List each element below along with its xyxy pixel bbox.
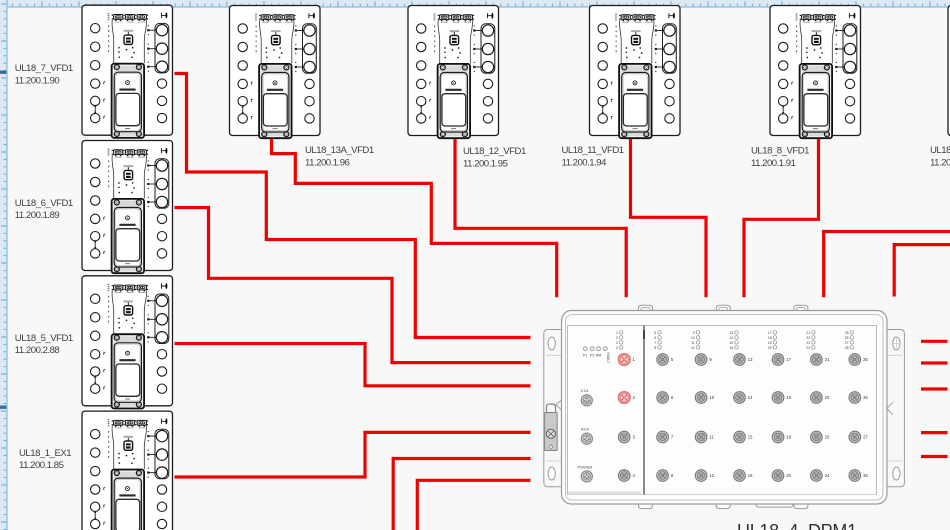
svg-text:UL18_1_EX1: UL18_1_EX1 <box>19 448 71 459</box>
svg-text:UL18_12_VFD1: UL18_12_VFD1 <box>463 146 526 157</box>
svg-text:UL18_11_VFD1: UL18_11_VFD1 <box>562 145 624 156</box>
svg-text:27: 27 <box>863 435 868 440</box>
svg-text:11.200.1.90: 11.200.1.90 <box>15 75 60 86</box>
svg-text:11.200.1.96: 11.200.1.96 <box>305 157 350 168</box>
svg-text:14: 14 <box>748 395 753 400</box>
svg-text:6: 6 <box>654 336 656 340</box>
svg-text:12: 12 <box>709 473 714 478</box>
svg-text:1: 1 <box>616 331 618 335</box>
svg-text:11: 11 <box>709 435 714 440</box>
svg-text:28: 28 <box>863 473 868 478</box>
svg-text:11: 11 <box>691 341 695 345</box>
svg-text:23: 23 <box>825 435 830 440</box>
svg-text:11.200.1.91: 11.200.1.91 <box>751 158 796 169</box>
svg-text:16: 16 <box>729 346 733 350</box>
svg-text:11.200.1.89: 11.200.1.89 <box>15 210 60 221</box>
svg-text:26: 26 <box>845 336 849 340</box>
svg-text:18: 18 <box>768 336 772 340</box>
svg-text:15: 15 <box>748 435 753 440</box>
svg-text:ACA: ACA <box>581 427 589 432</box>
svg-text:27: 27 <box>845 341 849 345</box>
svg-text:UL18_5_VFD1: UL18_5_VFD1 <box>15 333 73 344</box>
svg-text:25: 25 <box>845 331 849 335</box>
svg-text:21: 21 <box>825 357 830 362</box>
svg-text:11.200.1.97: 11.200.1.97 <box>930 157 950 168</box>
svg-text:10: 10 <box>691 336 695 340</box>
svg-text:4: 4 <box>616 346 618 350</box>
svg-text:24: 24 <box>806 346 810 350</box>
svg-text:11.200.1.95: 11.200.1.95 <box>463 158 508 169</box>
svg-text:28: 28 <box>845 346 849 350</box>
svg-text:UL18_4_DPM1: UL18_4_DPM1 <box>737 521 857 530</box>
svg-text:14: 14 <box>729 336 733 340</box>
svg-text:3: 3 <box>616 341 618 345</box>
svg-text:11.200.1.85: 11.200.1.85 <box>19 460 64 471</box>
svg-text:8: 8 <box>654 346 656 350</box>
svg-text:11.200.1.94: 11.200.1.94 <box>562 157 608 168</box>
svg-text:UL18_6_VFD1: UL18_6_VFD1 <box>15 198 73 209</box>
svg-text:POWER: POWER <box>578 464 593 469</box>
svg-text:17: 17 <box>786 357 791 362</box>
svg-text:20: 20 <box>786 473 791 478</box>
svg-text:P2: P2 <box>590 353 594 357</box>
svg-text:23: 23 <box>806 341 810 345</box>
svg-text:UL18_8_VFD1: UL18_8_VFD1 <box>751 146 809 157</box>
svg-text:2: 2 <box>616 336 618 340</box>
svg-text:RM: RM <box>596 353 602 357</box>
svg-text:25: 25 <box>863 357 868 362</box>
svg-text:11.200.2.88: 11.200.2.88 <box>15 345 60 356</box>
svg-text:22: 22 <box>806 336 810 340</box>
svg-text:15: 15 <box>729 341 733 345</box>
svg-text:18: 18 <box>786 395 791 400</box>
svg-text:17: 17 <box>768 331 772 335</box>
svg-text:13: 13 <box>729 331 733 335</box>
svg-text:10: 10 <box>709 395 714 400</box>
svg-text:5: 5 <box>654 331 656 335</box>
svg-text:24: 24 <box>825 473 830 478</box>
svg-text:20: 20 <box>768 346 772 350</box>
svg-text:UL18_7_VFD1: UL18_7_VFD1 <box>15 63 73 74</box>
svg-text:12: 12 <box>691 346 695 350</box>
svg-text:FAULT: FAULT <box>606 353 610 364</box>
svg-text:UL18_13A_VFD1: UL18_13A_VFD1 <box>305 145 374 156</box>
svg-text:9: 9 <box>693 331 695 335</box>
svg-text:V.24: V.24 <box>581 388 589 393</box>
svg-text:7: 7 <box>654 341 656 345</box>
svg-text:UL18_14_VFD1: UL18_14_VFD1 <box>930 145 950 156</box>
svg-text:P1: P1 <box>583 353 587 357</box>
svg-text:13: 13 <box>748 357 753 362</box>
svg-text:19: 19 <box>786 435 791 440</box>
svg-text:21: 21 <box>806 331 810 335</box>
svg-text:19: 19 <box>768 341 772 345</box>
svg-text:16: 16 <box>748 473 753 478</box>
svg-text:26: 26 <box>863 395 868 400</box>
svg-text:22: 22 <box>825 395 830 400</box>
